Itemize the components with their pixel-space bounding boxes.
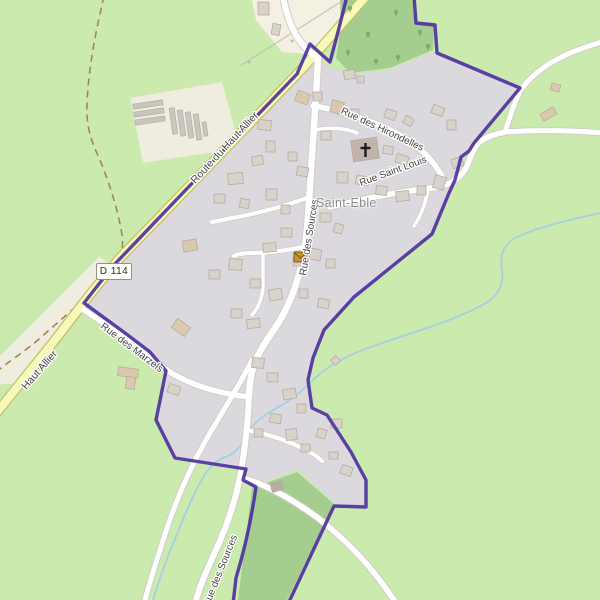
building bbox=[447, 120, 456, 130]
building bbox=[313, 92, 322, 101]
tree-icon bbox=[376, 63, 377, 66]
building bbox=[228, 172, 244, 184]
country-road-east bbox=[505, 131, 600, 133]
building bbox=[251, 155, 263, 166]
road-ref-badge-d114: D 114 bbox=[96, 263, 132, 280]
building bbox=[301, 444, 310, 452]
tree-icon bbox=[368, 36, 369, 39]
tree-icon bbox=[428, 48, 429, 51]
tree-icon bbox=[398, 59, 399, 62]
building bbox=[269, 413, 281, 424]
building bbox=[281, 205, 290, 214]
building bbox=[267, 373, 278, 382]
building bbox=[382, 145, 393, 155]
building bbox=[320, 213, 331, 222]
building bbox=[296, 166, 308, 177]
tree-icon bbox=[396, 14, 397, 17]
building bbox=[239, 198, 249, 208]
building bbox=[247, 318, 261, 328]
building bbox=[297, 404, 306, 413]
power-pole bbox=[248, 61, 251, 64]
building bbox=[329, 452, 338, 459]
building bbox=[254, 429, 263, 437]
building bbox=[317, 298, 329, 309]
building bbox=[326, 259, 335, 268]
building bbox=[271, 23, 281, 35]
tree-icon bbox=[350, 10, 351, 13]
building bbox=[125, 376, 136, 389]
building bbox=[288, 152, 297, 161]
building bbox=[337, 172, 348, 183]
building bbox=[258, 119, 272, 130]
building bbox=[258, 2, 269, 15]
building bbox=[316, 428, 327, 439]
building bbox=[286, 429, 298, 441]
building bbox=[396, 190, 410, 201]
building bbox=[266, 141, 275, 152]
building bbox=[231, 309, 242, 318]
tree-icon bbox=[420, 34, 421, 37]
building bbox=[250, 279, 261, 288]
church-cross-icon bbox=[364, 143, 366, 157]
building bbox=[282, 388, 297, 400]
map-canvas[interactable]: Route du Haut AllierHaut AllierRue des H… bbox=[0, 0, 600, 600]
building bbox=[321, 131, 331, 140]
building bbox=[229, 258, 243, 270]
building bbox=[268, 288, 283, 301]
building bbox=[209, 270, 220, 279]
building bbox=[417, 186, 426, 195]
building bbox=[333, 223, 344, 234]
building bbox=[263, 242, 277, 252]
building bbox=[343, 69, 355, 80]
building bbox=[182, 239, 198, 252]
map-viewport[interactable]: Route du Haut AllierHaut AllierRue des H… bbox=[0, 0, 600, 600]
tree-icon bbox=[348, 54, 349, 57]
building bbox=[266, 189, 277, 200]
building bbox=[214, 194, 225, 203]
power-pole bbox=[291, 40, 294, 43]
building bbox=[252, 357, 265, 368]
building bbox=[299, 289, 308, 298]
building bbox=[357, 76, 364, 83]
building bbox=[281, 228, 292, 237]
church-cross-icon bbox=[361, 147, 371, 149]
building bbox=[376, 186, 388, 196]
